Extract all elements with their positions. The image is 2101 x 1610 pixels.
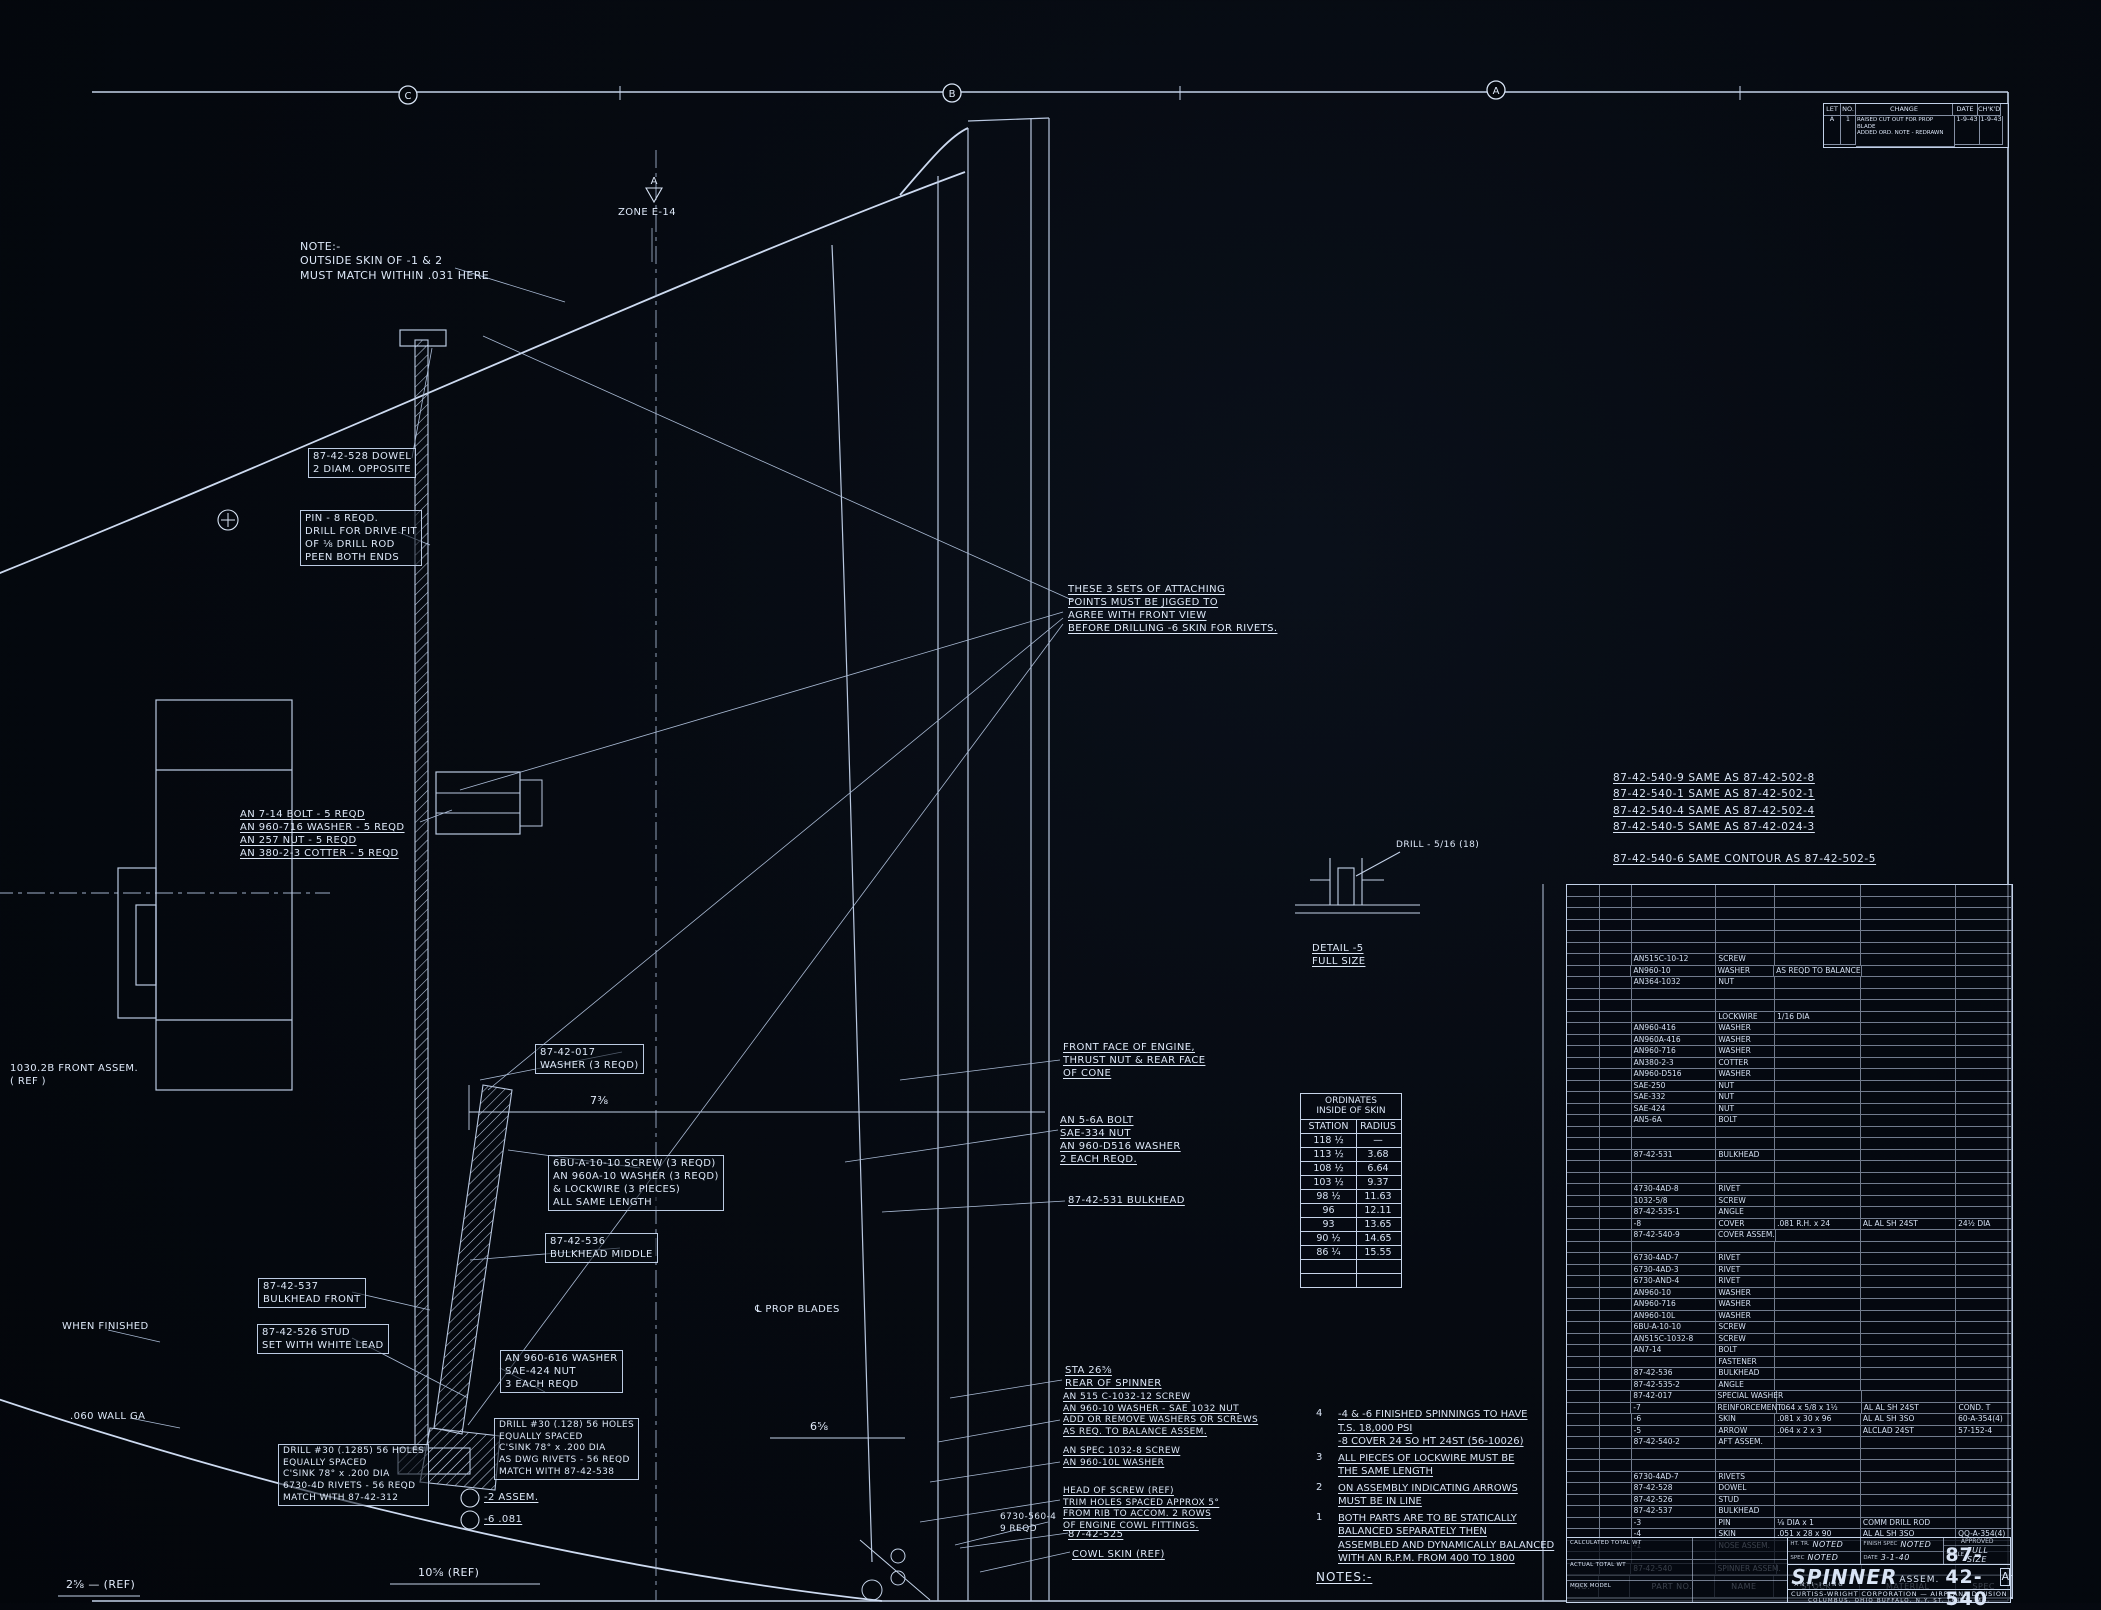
parts-cell xyxy=(1567,1242,1600,1253)
parts-cell xyxy=(1956,1345,2012,1356)
parts-row xyxy=(1567,1173,2012,1185)
callout-when-finished: WHEN FINISHED xyxy=(62,1320,149,1333)
parts-cell xyxy=(1956,1518,2012,1529)
parts-cell: 6730-4AD-7 xyxy=(1632,1253,1717,1264)
parts-cell xyxy=(1600,1242,1632,1253)
parts-cell xyxy=(1600,1322,1632,1333)
parts-cell xyxy=(1632,1242,1717,1253)
parts-cell xyxy=(1861,1253,1956,1264)
dim-2-58-ref: 2⅝ — (REF) xyxy=(66,1578,135,1592)
ordinates-row: 103 ½9.37 xyxy=(1301,1176,1401,1190)
parts-cell xyxy=(1775,1472,1861,1483)
parts-cell xyxy=(1567,1230,1600,1241)
spec-label: SPEC xyxy=(1790,1555,1804,1561)
parts-cell xyxy=(1956,908,2012,919)
parts-cell xyxy=(1956,1000,2012,1011)
parts-cell xyxy=(1775,1058,1861,1069)
parts-row: 87-42-535-2ANGLE xyxy=(1567,1380,2012,1392)
parts-cell xyxy=(1567,908,1600,919)
parts-cell xyxy=(1775,1334,1861,1345)
parts-cell xyxy=(1567,1299,1600,1310)
parts-cell xyxy=(1956,1046,2012,1057)
ordinate-radius: 13.65 xyxy=(1357,1218,1399,1231)
parts-cell xyxy=(1567,954,1600,965)
parts-cell xyxy=(1567,1115,1600,1126)
parts-cell xyxy=(1567,1288,1600,1299)
parts-cell xyxy=(1861,989,1956,1000)
parts-cell xyxy=(1775,977,1861,988)
zone-flag: A xyxy=(646,176,662,202)
parts-cell xyxy=(1775,1345,1861,1356)
parts-cell xyxy=(1600,1046,1632,1057)
parts-cell xyxy=(1600,1150,1632,1161)
drawing-title-suffix: ASSEM. xyxy=(1899,1575,1939,1585)
callout-screw-cluster: 6BU-A-10-10 SCREW (3 REQD) AN 960A-10 WA… xyxy=(548,1155,724,1211)
parts-cell xyxy=(1600,1127,1632,1138)
parts-cell: 6730-4AD-7 xyxy=(1632,1472,1717,1483)
callout-part-525: 87-42-525 xyxy=(1068,1528,1123,1541)
parts-cell xyxy=(1600,1345,1632,1356)
parts-cell xyxy=(1600,1449,1632,1460)
parts-cell xyxy=(1600,1069,1632,1080)
parts-cell xyxy=(1716,908,1775,919)
dim-10-58-ref: 10⅝ (REF) xyxy=(418,1566,479,1580)
parts-cell xyxy=(1956,1196,2012,1207)
parts-cell xyxy=(1567,920,1600,931)
parts-cell xyxy=(1600,1460,1632,1471)
parts-cell xyxy=(1956,1311,2012,1322)
callout-zone-label: ZONE E-14 xyxy=(618,206,676,219)
parts-row: -5ARROW.064 x 2 x 3ALCLAD 24ST57-152-4 xyxy=(1567,1426,2012,1438)
parts-cell xyxy=(1600,1380,1632,1391)
parts-row: 87-42-540-9COVER ASSEM. xyxy=(1567,1230,2012,1242)
title-block: CALCULATED TOTAL WT ACTUAL TOTAL WT MOCK… xyxy=(1566,1537,2011,1603)
parts-cell xyxy=(1567,1207,1600,1218)
parts-cell: AFT ASSEM. xyxy=(1716,1437,1775,1448)
parts-cell: COND. T xyxy=(1956,1403,2012,1414)
ordinates-title: ORDINATES INSIDE OF SKIN xyxy=(1301,1094,1401,1120)
parts-cell xyxy=(1567,1414,1600,1425)
parts-cell: 87-42-526 xyxy=(1632,1495,1717,1506)
parts-cell: COVER ASSEM. xyxy=(1716,1230,1776,1241)
parts-cell xyxy=(1567,1449,1600,1460)
parts-cell: BOLT xyxy=(1716,1115,1775,1126)
parts-cell: DOWEL xyxy=(1716,1483,1775,1494)
parts-cell xyxy=(1567,1357,1600,1368)
parts-row xyxy=(1567,1242,2012,1254)
parts-cell xyxy=(1861,1127,1956,1138)
parts-row: 6730-4AD-7RIVET xyxy=(1567,1253,2012,1265)
parts-cell xyxy=(1861,1000,1956,1011)
parts-cell: COTTER xyxy=(1716,1058,1775,1069)
parts-cell xyxy=(1956,1104,2012,1115)
parts-cell xyxy=(1775,1299,1861,1310)
parts-cell: .064 x 2 x 3 xyxy=(1775,1426,1861,1437)
parts-cell xyxy=(1716,943,1775,954)
parts-row: 87-42-535-1ANGLE xyxy=(1567,1207,2012,1219)
parts-cell xyxy=(1862,1391,1957,1402)
parts-cell xyxy=(1956,897,2012,908)
parts-cell: AS REQD TO BALANCE xyxy=(1774,966,1862,977)
parts-cell xyxy=(1956,977,2012,988)
parts-cell xyxy=(1600,943,1632,954)
parts-cell xyxy=(1775,1115,1861,1126)
parts-row: AN364-1032NUT xyxy=(1567,977,2012,989)
parts-cell: 87-42-017 xyxy=(1631,1391,1715,1402)
callout-an5-stack: AN 5-6A BOLT SAE-334 NUT AN 960-D516 WAS… xyxy=(1060,1114,1181,1166)
ordinate-station: 118 ½ xyxy=(1301,1134,1357,1147)
parts-cell xyxy=(1775,920,1861,931)
parts-cell xyxy=(1600,1161,1632,1172)
parts-cell xyxy=(1716,1127,1775,1138)
parts-row xyxy=(1567,920,2012,932)
parts-cell: SAE-424 xyxy=(1632,1104,1717,1115)
parts-cell xyxy=(1567,1276,1600,1287)
parts-cell xyxy=(1775,989,1861,1000)
parts-cell xyxy=(1567,1173,1600,1184)
parts-cell: 87-42-528 xyxy=(1632,1483,1717,1494)
parts-cell xyxy=(1956,1184,2012,1195)
parts-cell xyxy=(1956,954,2012,965)
parts-cell xyxy=(1600,1138,1632,1149)
revision-row: A1RAISED CUT OUT FOR PROP BLADE ADDED OR… xyxy=(1824,116,2008,147)
parts-cell xyxy=(1861,885,1956,896)
parts-row xyxy=(1567,1449,2012,1461)
parts-cell: AN960-10 xyxy=(1632,1288,1717,1299)
parts-cell xyxy=(1632,943,1717,954)
parts-cell xyxy=(1600,1115,1632,1126)
parts-cell xyxy=(1775,1000,1861,1011)
parts-row: SAE-250NUT xyxy=(1567,1081,2012,1093)
parts-cell xyxy=(1956,1437,2012,1448)
parts-row xyxy=(1567,1161,2012,1173)
ordinate-radius: 9.37 xyxy=(1357,1176,1399,1189)
callout-bolt-stack: AN 7-14 BOLT - 5 REQD AN 960-716 WASHER … xyxy=(240,808,405,860)
parts-cell xyxy=(1600,1368,1632,1379)
revision-cell: 1-9-43 xyxy=(1980,116,2003,145)
hub-geometry xyxy=(118,700,292,1090)
parts-cell: 87-42-540-2 xyxy=(1632,1437,1717,1448)
revision-cell: 1 xyxy=(1841,116,1856,145)
parts-cell xyxy=(1861,1012,1956,1023)
parts-row: 87-42-536BULKHEAD xyxy=(1567,1368,2012,1380)
parts-cell xyxy=(1567,1253,1600,1264)
parts-cell xyxy=(1600,1092,1632,1103)
parts-cell xyxy=(1861,943,1956,954)
parts-cell xyxy=(1600,1023,1632,1034)
parts-cell xyxy=(1567,1127,1600,1138)
assem-balloons xyxy=(461,1489,479,1529)
parts-cell xyxy=(1632,989,1717,1000)
parts-cell: AN515C-10-12 xyxy=(1632,954,1717,965)
parts-cell xyxy=(1716,931,1775,942)
parts-cell xyxy=(1567,1483,1600,1494)
parts-cell xyxy=(1600,1495,1632,1506)
parts-cell xyxy=(1775,1023,1861,1034)
parts-cell xyxy=(1861,1345,1956,1356)
parts-cell xyxy=(1956,1483,2012,1494)
parts-cell xyxy=(1600,1426,1632,1437)
parts-cell xyxy=(1600,1000,1632,1011)
parts-row xyxy=(1567,931,2012,943)
parts-row: 6730-4AD-7RIVETS xyxy=(1567,1472,2012,1484)
parts-cell: 6BU-A-10-10 xyxy=(1632,1322,1717,1333)
parts-cell xyxy=(1956,1391,2012,1402)
parts-cell xyxy=(1956,989,2012,1000)
parts-cell xyxy=(1567,966,1600,977)
parts-cell xyxy=(1567,1495,1600,1506)
revision-header-cell: CH'K'D xyxy=(1978,104,2001,116)
parts-row: AN7-14BOLT xyxy=(1567,1345,2012,1357)
parts-cell: 87-42-531 xyxy=(1632,1150,1717,1161)
parts-cell xyxy=(1861,1265,1956,1276)
parts-cell xyxy=(1567,1150,1600,1161)
parts-cell: BULKHEAD xyxy=(1716,1150,1775,1161)
parts-cell xyxy=(1861,1242,1956,1253)
parts-row: 6730-AND-4RIVET xyxy=(1567,1276,2012,1288)
parts-cell: AN380-2-3 xyxy=(1632,1058,1717,1069)
parts-cell: RIVETS xyxy=(1716,1472,1775,1483)
parts-cell: .081 x 30 x 96 xyxy=(1775,1414,1861,1425)
ordinates-row: 9313.65 xyxy=(1301,1218,1401,1232)
parts-cell xyxy=(1861,1299,1956,1310)
parts-cell: -8 xyxy=(1632,1219,1717,1230)
parts-cell xyxy=(1775,1506,1861,1517)
parts-cell xyxy=(1775,1449,1861,1460)
ordinate-station xyxy=(1301,1274,1357,1287)
parts-cell xyxy=(1567,1184,1600,1195)
parts-cell xyxy=(1600,931,1632,942)
parts-cell xyxy=(1956,1023,2012,1034)
ordinates-row: 98 ½11.63 xyxy=(1301,1190,1401,1204)
parts-cell xyxy=(1600,1311,1632,1322)
parts-cell xyxy=(1775,1460,1861,1471)
callout-prop-blades: ℄ PROP BLADES xyxy=(755,1303,840,1316)
parts-cell: SAE-250 xyxy=(1632,1081,1717,1092)
parts-cell xyxy=(1956,1081,2012,1092)
parts-row xyxy=(1567,885,2012,897)
parts-cell xyxy=(1956,1138,2012,1149)
parts-cell xyxy=(1775,1127,1861,1138)
parts-cell xyxy=(1861,1046,1956,1057)
ordinate-station: 86 ¼ xyxy=(1301,1246,1357,1259)
ordinate-station xyxy=(1301,1260,1357,1273)
parts-cell xyxy=(1600,1253,1632,1264)
parts-cell: NUT xyxy=(1716,1092,1775,1103)
parts-cell xyxy=(1632,1357,1717,1368)
parts-cell xyxy=(1716,920,1775,931)
ordinate-radius: — xyxy=(1357,1134,1399,1147)
parts-cell: RIVET xyxy=(1716,1265,1775,1276)
parts-cell xyxy=(1861,1196,1956,1207)
parts-cell xyxy=(1716,1161,1775,1172)
parts-cell xyxy=(1775,1311,1861,1322)
parts-cell xyxy=(1632,1012,1717,1023)
company-cities: COLUMBUS, OHIO BUFFALO, N.Y. ST. LOUIS, … xyxy=(1788,1598,2010,1604)
parts-cell xyxy=(1775,1483,1861,1494)
detail5-sketch xyxy=(1295,852,1420,913)
parts-cell xyxy=(1600,1391,1632,1402)
parts-cell xyxy=(1567,1138,1600,1149)
parts-cell xyxy=(1775,1276,1861,1287)
finish-spec-label: FINISH SPEC xyxy=(1863,1541,1897,1547)
wt-value-actual xyxy=(1693,1560,1787,1581)
revision-header-cell: LET xyxy=(1824,104,1841,116)
parts-cell: ⅛ DIA x 1 xyxy=(1775,1518,1861,1529)
parts-cell xyxy=(1600,920,1632,931)
parts-cell xyxy=(1600,954,1632,965)
parts-cell: 6730-4AD-3 xyxy=(1632,1265,1717,1276)
parts-row: -6SKIN.081 x 30 x 96AL AL SH 3SO60-A-354… xyxy=(1567,1414,2012,1426)
title-main: HT. TR.NOTED SPECNOTED FINISH SPECNOTED … xyxy=(1788,1538,2010,1602)
revision-header-cell: NO. xyxy=(1841,104,1856,116)
parts-cell: 60-A-354(4) xyxy=(1956,1414,2012,1425)
parts-cell: .081 R.H. x 24 xyxy=(1775,1219,1861,1230)
parts-cell xyxy=(1775,1184,1861,1195)
note-number: 3 xyxy=(1316,1452,1328,1479)
parts-cell xyxy=(1716,897,1775,908)
parts-row: -7REINFORCEMENT.064 x 5/8 x 1½AL AL SH 2… xyxy=(1567,1403,2012,1415)
ordinates-col-radius: RADIUS xyxy=(1357,1120,1399,1133)
parts-cell xyxy=(1861,897,1956,908)
parts-cell: AN515C-1032-8 xyxy=(1632,1334,1717,1345)
parts-cell: WASHER xyxy=(1716,1046,1775,1057)
parts-cell: AL AL SH 24ST xyxy=(1861,1219,1956,1230)
parts-cell xyxy=(1600,977,1632,988)
parts-cell xyxy=(1716,989,1775,1000)
parts-cell xyxy=(1775,931,1861,942)
parts-cell xyxy=(1861,1357,1956,1368)
parts-cell: SKIN xyxy=(1716,1414,1775,1425)
parts-cell xyxy=(1775,1253,1861,1264)
parts-row: AN960-10WASHERAS REQD TO BALANCE xyxy=(1567,966,2012,978)
weight-grid: CALCULATED TOTAL WT ACTUAL TOTAL WT MOCK… xyxy=(1567,1538,1788,1602)
ordinates-row: 108 ½6.64 xyxy=(1301,1162,1401,1176)
parts-cell xyxy=(1956,1449,2012,1460)
revision-cell: RAISED CUT OUT FOR PROP BLADE ADDED ORD.… xyxy=(1856,116,1955,147)
ordinates-col-station: STATION xyxy=(1301,1120,1357,1133)
ordinate-station: 93 xyxy=(1301,1218,1357,1231)
parts-cell xyxy=(1567,1322,1600,1333)
callout-drill-detail: DRILL - 5/16 (18) xyxy=(1396,840,1479,852)
parts-cell xyxy=(1632,931,1717,942)
parts-row xyxy=(1567,908,2012,920)
parts-cell xyxy=(1775,1495,1861,1506)
parts-cell: RIVET xyxy=(1716,1276,1775,1287)
parts-cell xyxy=(1861,1449,1956,1460)
parts-cell: AL AL SH 3SO xyxy=(1861,1414,1956,1425)
parts-cell xyxy=(1775,908,1861,919)
parts-cell xyxy=(1600,1483,1632,1494)
parts-cell xyxy=(1632,1173,1717,1184)
parts-cell xyxy=(1567,1069,1600,1080)
parts-row: 6730-4AD-3RIVET xyxy=(1567,1265,2012,1277)
parts-cell xyxy=(1600,1104,1632,1115)
parts-cell: BULKHEAD xyxy=(1716,1506,1775,1517)
callout-drill-left: DRILL #30 (.1285) 56 HOLES EQUALLY SPACE… xyxy=(278,1444,429,1506)
parts-cell: AN5-6A xyxy=(1632,1115,1717,1126)
parts-cell xyxy=(1956,1058,2012,1069)
parts-row xyxy=(1567,897,2012,909)
parts-cell xyxy=(1956,1322,2012,1333)
callout-bulkhead-front: 87-42-537 BULKHEAD FRONT xyxy=(258,1278,366,1308)
heat-treat-label: HT. TR. xyxy=(1790,1541,1809,1547)
parts-cell xyxy=(1600,1472,1632,1483)
parts-cell: BOLT xyxy=(1716,1345,1775,1356)
parts-cell xyxy=(1776,1230,1861,1241)
parts-cell xyxy=(1600,1173,1632,1184)
note-text: BOTH PARTS ARE TO BE STATICALLY BALANCED… xyxy=(1338,1512,1554,1566)
ordinates-row: 9612.11 xyxy=(1301,1204,1401,1218)
ordinate-station: 113 ½ xyxy=(1301,1148,1357,1161)
parts-cell xyxy=(1600,1437,1632,1448)
wt-value-calc xyxy=(1693,1538,1787,1559)
parts-row: -8COVER.081 R.H. x 24AL AL SH 24ST24½ DI… xyxy=(1567,1219,2012,1231)
parts-cell: AN960A-416 xyxy=(1632,1035,1717,1046)
parts-cell xyxy=(1567,1058,1600,1069)
callout-dowel: 87-42-528 DOWEL 2 DIAM. OPPOSITE xyxy=(308,448,416,478)
parts-cell xyxy=(1775,1161,1861,1172)
revision-header-cell: CHANGE xyxy=(1856,104,1953,116)
parts-cell: FASTENER xyxy=(1716,1357,1775,1368)
parts-cell xyxy=(1775,1288,1861,1299)
parts-cell xyxy=(1567,1460,1600,1471)
wt-label-calc: CALCULATED TOTAL WT xyxy=(1567,1538,1693,1559)
parts-cell xyxy=(1775,1092,1861,1103)
callout-pin: PIN - 8 REQD. DRILL FOR DRIVE FIT OF ⅛ D… xyxy=(300,510,422,566)
parts-cell xyxy=(1567,1092,1600,1103)
parts-row: 87-42-528DOWEL xyxy=(1567,1483,2012,1495)
callout-trim-note: HEAD OF SCREW (REF) TRIM HOLES SPACED AP… xyxy=(1063,1486,1219,1533)
parts-cell xyxy=(1861,1207,1956,1218)
parts-cell: 1032-5/8 xyxy=(1632,1196,1717,1207)
parts-row: AN960-10WASHER xyxy=(1567,1288,2012,1300)
note-outside-skin: NOTE:- OUTSIDE SKIN OF -1 & 2 MUST MATCH… xyxy=(300,240,489,283)
parts-cell xyxy=(1956,1242,2012,1253)
parts-row xyxy=(1567,1460,2012,1472)
note-text: ALL PIECES OF LOCKWIRE MUST BE THE SAME … xyxy=(1338,1452,1514,1479)
parts-cell: 87-42-536 xyxy=(1632,1368,1717,1379)
parts-cell xyxy=(1600,1265,1632,1276)
parts-cell xyxy=(1956,1276,2012,1287)
parts-row: 6BU-A-10-10SCREW xyxy=(1567,1322,2012,1334)
parts-cell: 87-42-535-1 xyxy=(1632,1207,1717,1218)
parts-cell: RIVET xyxy=(1716,1253,1775,1264)
parts-cell xyxy=(1716,1000,1775,1011)
parts-cell xyxy=(1956,1334,2012,1345)
parts-row: 4730-4AD-8RIVET xyxy=(1567,1184,2012,1196)
callout-wall-ga: .060 WALL GA xyxy=(70,1410,145,1423)
parts-cell xyxy=(1567,1104,1600,1115)
note-text: ON ASSEMBLY INDICATING ARROWS MUST BE IN… xyxy=(1338,1482,1518,1509)
parts-cell xyxy=(1600,966,1632,977)
parts-cell xyxy=(1567,1023,1600,1034)
parts-cell xyxy=(1567,897,1600,908)
parts-cell xyxy=(1600,1276,1632,1287)
ordinate-station: 108 ½ xyxy=(1301,1162,1357,1175)
parts-cell xyxy=(1775,1437,1861,1448)
heat-treat-value: NOTED xyxy=(1812,1540,1843,1549)
parts-cell: AN960-716 xyxy=(1632,1299,1717,1310)
callout-front-assem-ref: 1030.2B FRONT ASSEM. ( REF ) xyxy=(10,1062,138,1088)
parts-cell xyxy=(1861,1506,1956,1517)
parts-row: AN960-716WASHER xyxy=(1567,1299,2012,1311)
parts-cell xyxy=(1632,1000,1717,1011)
spinner-profile xyxy=(0,128,968,1601)
parts-cell xyxy=(1600,1288,1632,1299)
parts-row: 87-42-537BULKHEAD xyxy=(1567,1506,2012,1518)
parts-cell xyxy=(1632,885,1717,896)
